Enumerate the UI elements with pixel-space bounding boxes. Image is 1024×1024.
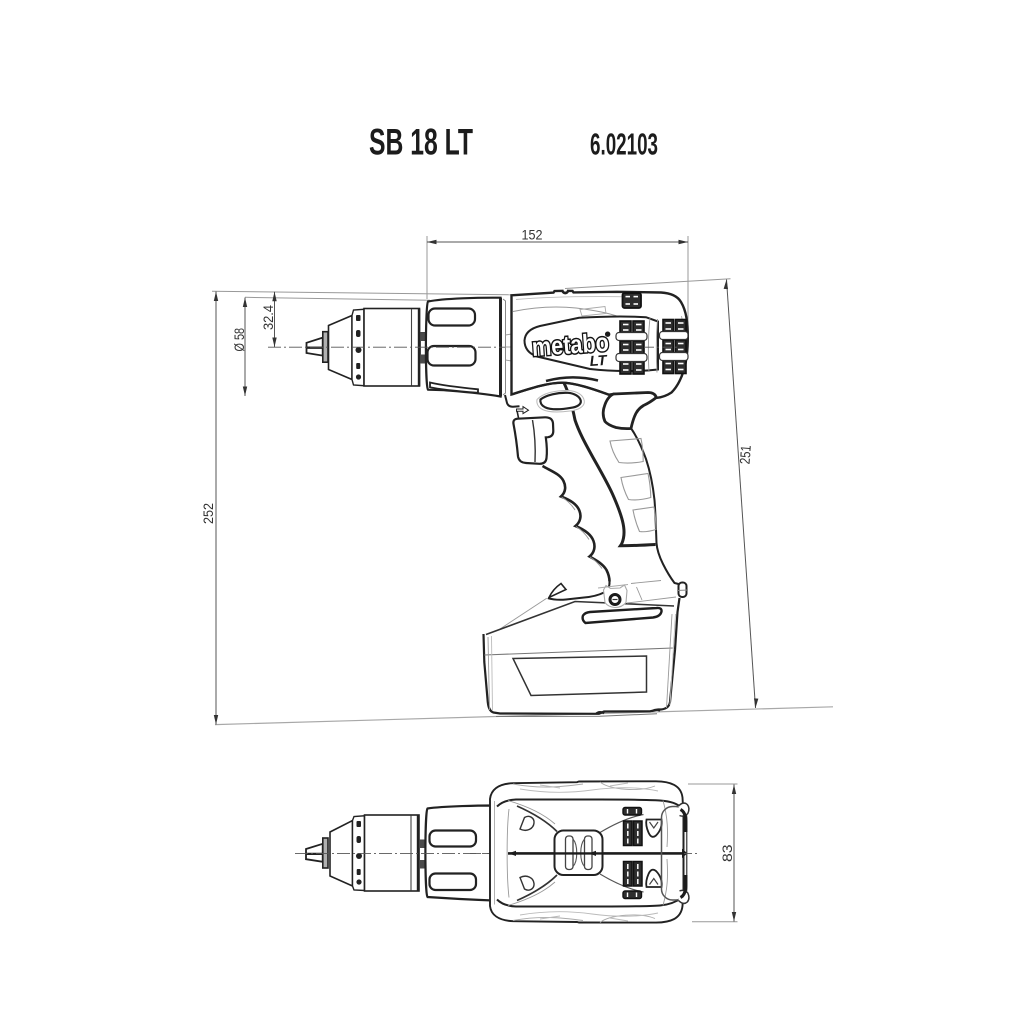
svg-text:152: 152 bbox=[522, 227, 543, 243]
svg-text:83: 83 bbox=[720, 844, 736, 862]
svg-text:32.4: 32.4 bbox=[261, 305, 277, 330]
svg-text:252: 252 bbox=[201, 503, 217, 524]
svg-text:251: 251 bbox=[738, 445, 755, 465]
svg-text:LT: LT bbox=[589, 353, 608, 370]
svg-text:SB 18 LT: SB 18 LT bbox=[369, 121, 473, 163]
svg-text:6.02103: 6.02103 bbox=[590, 128, 658, 162]
svg-text:Ø 58: Ø 58 bbox=[232, 328, 248, 352]
